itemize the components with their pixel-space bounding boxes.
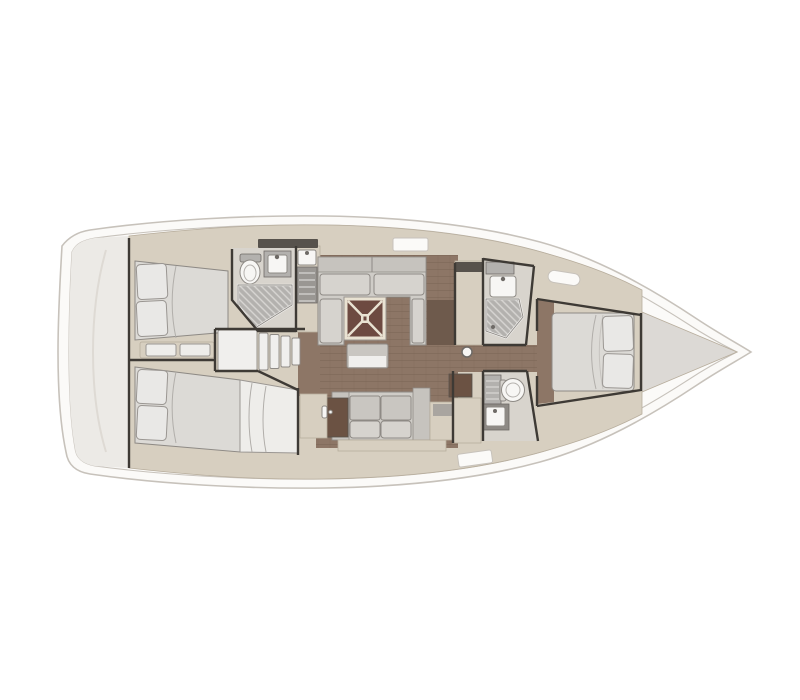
nav-seat-cabinet — [453, 398, 481, 443]
settee-cushion-1 — [320, 274, 370, 295]
island-pillow-2 — [602, 353, 633, 388]
cabin-door-handle — [329, 410, 333, 414]
settee-end-cabinet-top — [433, 404, 453, 416]
salon-table — [344, 297, 386, 340]
settee-left-arm-cushion — [320, 299, 342, 343]
forward-cabin-floor — [537, 300, 554, 404]
port-bench-cushion-2 — [180, 344, 210, 356]
companionway-hatch-strip — [258, 239, 318, 248]
saloon-deck-hatch — [393, 238, 428, 251]
yacht-floorplan-svg — [0, 0, 800, 700]
fwd-toilet — [502, 379, 525, 402]
companionway — [218, 330, 300, 371]
stb-cushion-1 — [350, 421, 380, 438]
mid-column-top-strip — [455, 262, 483, 272]
fwd-head-port-faucet-icon — [501, 277, 505, 281]
settee-cushion-2 — [374, 274, 424, 295]
step-2 — [270, 335, 279, 369]
shower-drain-icon — [491, 325, 495, 329]
starboard-pillow-2 — [136, 405, 168, 441]
island-pillow-1 — [602, 315, 633, 351]
port-pillow-1 — [136, 263, 168, 300]
settee-plinth — [338, 440, 446, 451]
step-3 — [281, 336, 290, 367]
aft-deck-area — [69, 236, 129, 468]
engine-box — [218, 330, 257, 371]
table-center-dot — [364, 317, 367, 321]
settee-right-arm-cushion — [412, 299, 424, 343]
salon-bench — [347, 344, 388, 368]
fwd-head-stb-faucet-icon — [493, 409, 497, 413]
settee-arm-right — [413, 388, 430, 440]
step-1 — [259, 333, 268, 370]
port-bench-cushion-1 — [146, 344, 176, 356]
bench-front — [349, 356, 386, 367]
step-4 — [292, 338, 300, 365]
aft-deck — [69, 236, 129, 468]
galley-faucet-icon — [305, 251, 309, 255]
forward-cabin — [552, 313, 634, 391]
stb-backrest-1 — [350, 396, 380, 420]
mid-column-top — [455, 261, 483, 345]
port-pillow-2 — [136, 300, 168, 337]
fwd-head-stb-locker — [484, 375, 501, 404]
mast-post — [462, 347, 472, 357]
aft-sink-faucet-icon — [275, 255, 279, 259]
cabinet-handle — [322, 406, 327, 418]
cabin-door — [327, 398, 348, 437]
stb-backrest-2 — [381, 396, 411, 420]
stb-cushion-2 — [381, 421, 411, 438]
aft-toilet — [240, 260, 260, 284]
starboard-pillow-1 — [136, 369, 168, 405]
yacht-floor-plan — [0, 0, 800, 700]
companionway-floor — [298, 332, 320, 396]
salon-dark-niche — [427, 300, 456, 345]
